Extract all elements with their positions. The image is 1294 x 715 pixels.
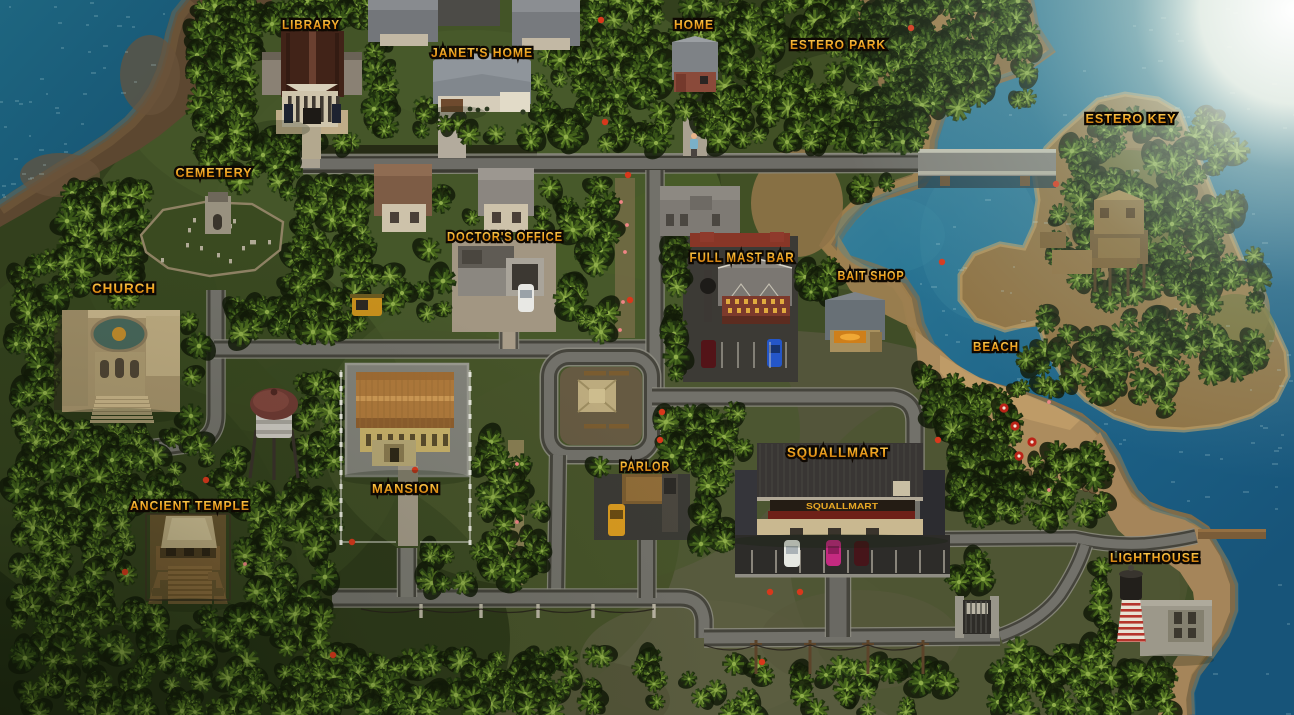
svg-text:JANET'S HOME: JANET'S HOME [431, 45, 533, 60]
svg-text:FULL MAST BAR: FULL MAST BAR [690, 249, 795, 265]
svg-text:BAIT SHOP: BAIT SHOP [838, 268, 905, 283]
svg-text:HOME: HOME [674, 17, 714, 32]
svg-text:CHURCH: CHURCH [92, 280, 156, 296]
svg-text:LIGHTHOUSE: LIGHTHOUSE [1110, 550, 1200, 565]
svg-text:ESTERO KEY: ESTERO KEY [1086, 111, 1177, 126]
svg-text:CEMETERY: CEMETERY [176, 165, 253, 180]
svg-text:ESTERO PARK: ESTERO PARK [790, 37, 886, 52]
svg-text:PARLOR: PARLOR [620, 458, 670, 474]
svg-text:DOCTOR'S OFFICE: DOCTOR'S OFFICE [447, 229, 563, 244]
svg-text:ANCIENT TEMPLE: ANCIENT TEMPLE [130, 498, 250, 513]
svg-text:BEACH: BEACH [973, 339, 1019, 354]
svg-text:MANSION: MANSION [372, 481, 440, 496]
svg-text:LIBRARY: LIBRARY [282, 17, 340, 32]
svg-text:SQUALLMART: SQUALLMART [787, 444, 889, 460]
